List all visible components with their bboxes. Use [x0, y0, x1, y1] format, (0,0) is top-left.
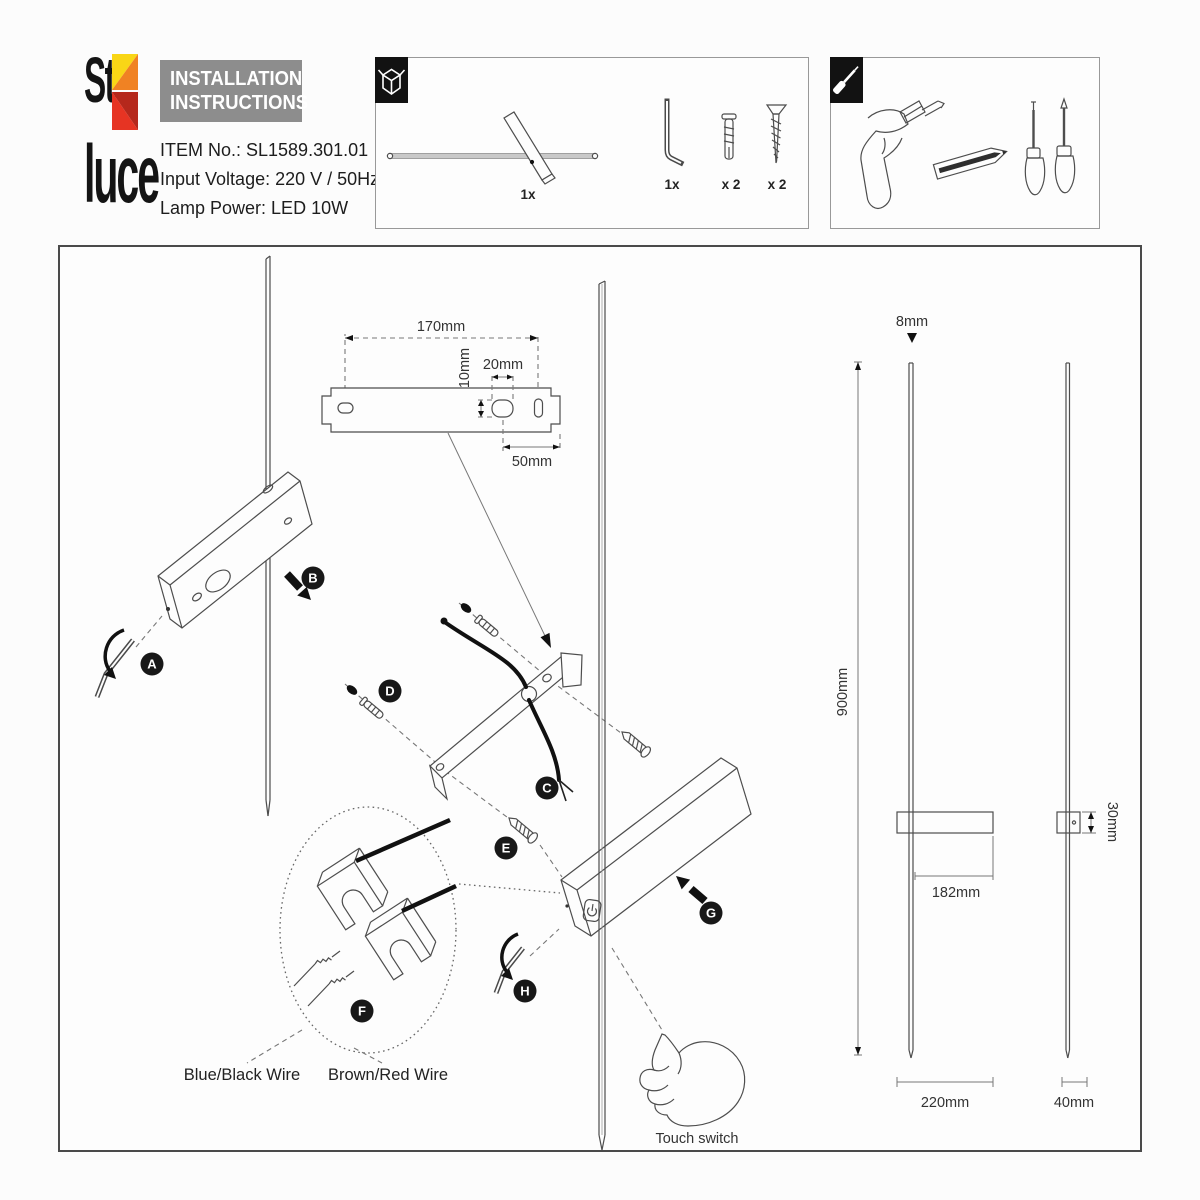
screw-drawing	[767, 105, 786, 163]
svg-text:H: H	[520, 984, 529, 999]
allen-key-qty: 1x	[664, 177, 680, 192]
alignment-dash	[136, 616, 162, 647]
dim-body-extension: 182mm	[932, 885, 980, 901]
dim-slot-offset: 50mm	[512, 454, 552, 470]
dim-overall-height: 900mm	[835, 668, 851, 716]
lamp-power: Lamp Power: LED 10W	[160, 194, 379, 223]
svg-text:D: D	[385, 684, 394, 699]
wall-plug-qty: x 2	[722, 177, 741, 192]
alignment-dash	[540, 845, 562, 877]
allen-key-drawing	[667, 101, 681, 163]
lamp-body-g	[561, 758, 751, 936]
terminal-block-1	[312, 848, 392, 930]
wire-stub	[402, 886, 456, 911]
drill-drawing	[861, 101, 944, 208]
step-badge-h: H	[514, 980, 537, 1003]
dim-slot-width: 20mm	[483, 357, 523, 373]
wall-plug-2	[359, 697, 385, 721]
alignment-dash	[551, 681, 621, 733]
wall-plug-1	[474, 615, 500, 639]
svg-text:E: E	[502, 841, 511, 856]
svg-text:B: B	[308, 571, 317, 586]
arrow-g	[676, 876, 705, 901]
installation-diagram: 170mm 10mm 20mm 50mm	[58, 245, 1142, 1152]
dim-bracket-length: 170mm	[417, 319, 465, 335]
step-badge-b: B	[302, 567, 325, 590]
alignment-dash	[530, 929, 559, 956]
dim-rod-diameter: 8mm	[896, 314, 928, 330]
step-badge-c: C	[536, 777, 559, 800]
wire-brown-label: Brown/Red Wire	[328, 1066, 448, 1084]
step-badge-g: G	[700, 902, 723, 925]
item-info: ITEM No.: SL1589.301.01 Input Voltage: 2…	[160, 136, 379, 223]
mounting-bracket-flat: 170mm 10mm 20mm 50mm	[322, 319, 560, 648]
page-title: INSTALLATION INSTRUCTIONS	[160, 60, 302, 122]
mount-screw-1	[618, 727, 652, 758]
logo-st-text: St	[84, 48, 114, 112]
item-number: ITEM No.: SL1589.301.01	[160, 136, 379, 165]
touch-switch-leader	[612, 948, 662, 1030]
logo-triangles-icon	[112, 53, 138, 130]
step-badge-a: A	[141, 653, 164, 676]
wire-stub	[356, 820, 450, 861]
step-badge-f: F	[351, 1000, 374, 1023]
svg-text:A: A	[147, 657, 157, 672]
allen-key-a	[97, 630, 133, 697]
pencil-drawing	[933, 144, 1008, 179]
step-badge-e: E	[495, 837, 518, 860]
side-view: 30mm 40mm	[1054, 363, 1120, 1111]
alignment-dash	[445, 771, 507, 817]
tools-drawing	[830, 57, 1100, 229]
front-view: 8mm 900mm 182mm 220mm	[835, 314, 993, 1111]
screw-qty: x 2	[768, 177, 787, 192]
lamp-rod-middle	[599, 281, 605, 1150]
dim-body-depth: 40mm	[1054, 1095, 1094, 1111]
stripped-wire-2	[308, 971, 354, 1006]
plug-cap	[459, 601, 473, 615]
wire-blue-label: Blue/Black Wire	[184, 1066, 300, 1084]
lamp-qty: 1x	[520, 187, 536, 202]
wire-label-leader	[354, 1048, 382, 1063]
lamp-drawing	[387, 112, 597, 184]
wire-label-leader	[247, 1030, 302, 1063]
stripped-wire-1	[294, 951, 340, 986]
dim-body-height: 30mm	[1104, 802, 1120, 842]
dim-body-width: 220mm	[921, 1095, 969, 1111]
lamp-body-a	[158, 472, 312, 628]
connector-leader	[459, 884, 560, 893]
input-voltage: Input Voltage: 220 V / 50Hz	[160, 165, 379, 194]
dim-slot-height: 10mm	[457, 348, 473, 388]
svg-text:C: C	[542, 781, 552, 796]
svg-text:F: F	[358, 1004, 366, 1019]
title-line2: INSTRUCTIONS	[170, 91, 291, 115]
logo-luce-text: luce	[84, 134, 158, 216]
flat-screwdriver-drawing	[1025, 102, 1044, 195]
touch-switch-label: Touch switch	[655, 1131, 738, 1147]
title-line1: INSTALLATION	[170, 67, 291, 91]
wall-plug-drawing	[722, 114, 736, 159]
package-contents-drawing: 1x 1x x 2 x 2	[375, 57, 809, 229]
phillips-screwdriver-drawing	[1055, 99, 1074, 193]
touch-hand	[640, 1034, 745, 1126]
step-badge-d: D	[379, 680, 402, 703]
svg-text:G: G	[706, 906, 716, 921]
